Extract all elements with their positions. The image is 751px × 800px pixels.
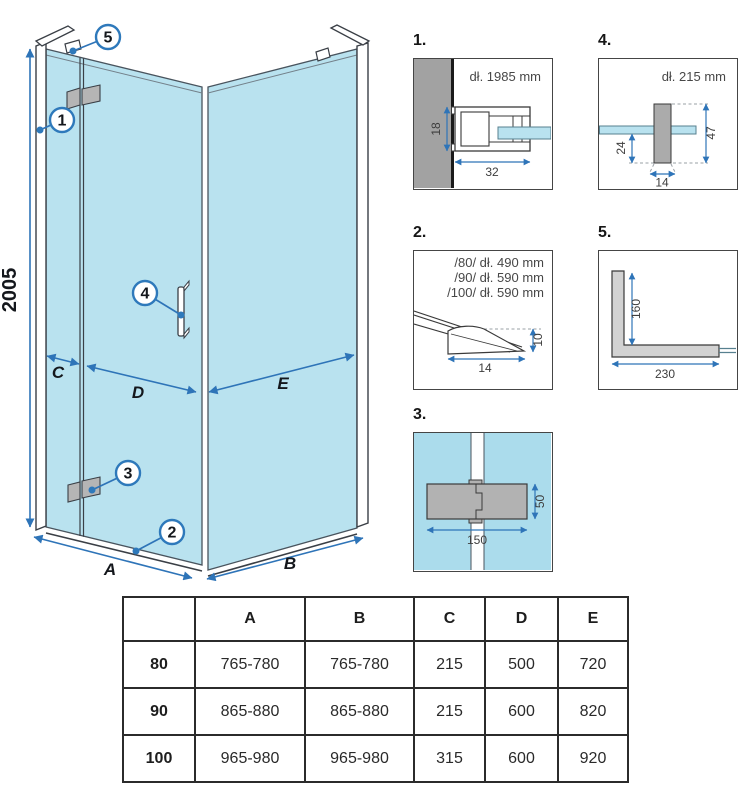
- cell-80-e: 720: [558, 641, 628, 688]
- dim-d-label: D: [132, 383, 144, 402]
- row-size-90: 90: [123, 688, 195, 735]
- header-a: A: [195, 597, 305, 641]
- cell-100-a: 965-980: [195, 735, 305, 782]
- dimension-height: 2005: [0, 49, 30, 527]
- wall-profile-right: [357, 43, 368, 527]
- dim-10-label: 10: [531, 333, 545, 347]
- dim-24-label: 24: [614, 141, 628, 155]
- row-size-100: 100: [123, 735, 195, 782]
- detail-1-drawing: dł. 1985 mm 18 32: [414, 59, 551, 188]
- detail-2-dim-14: 14: [448, 359, 525, 375]
- dim-18-label: 18: [429, 122, 443, 136]
- dim-47-label: 47: [704, 126, 718, 140]
- callout-4-number: 4: [141, 286, 150, 303]
- glass-edge: [600, 126, 697, 134]
- detail-2-box: /80/ dł. 490 mm /90/ dł. 590 mm /100/ dł…: [413, 250, 553, 390]
- detail-1-box: dł. 1985 mm 18 32: [413, 58, 553, 190]
- dim-32-label: 32: [485, 165, 499, 179]
- callout-2-number: 2: [168, 525, 177, 542]
- cell-90-e: 820: [558, 688, 628, 735]
- height-dim-label: 2005: [0, 268, 21, 313]
- detail-2-note-90: /90/ dł. 590 mm: [454, 270, 544, 285]
- dim-160-label: 160: [629, 299, 643, 319]
- header-e: E: [558, 597, 628, 641]
- table-row: 100 965-980 965-980 315 600 920: [123, 735, 628, 782]
- detail-2-note-80: /80/ dł. 490 mm: [454, 255, 544, 270]
- size-table: A B C D E 80 765-780 765-780 215 500 720…: [122, 596, 629, 783]
- cell-100-b: 965-980: [305, 735, 414, 782]
- callout-1-number: 1: [58, 113, 67, 130]
- header-b: B: [305, 597, 414, 641]
- detail-4-dim-47: 47: [704, 104, 718, 163]
- dim-b-label: B: [284, 554, 296, 573]
- detail-3-box: 150 50: [413, 432, 553, 572]
- detail-4-label: 4.: [598, 32, 611, 50]
- bottom-seal-profile: [448, 326, 524, 354]
- glass-panel-right: [208, 49, 357, 570]
- wall-line: [451, 59, 454, 188]
- row-size-80: 80: [123, 641, 195, 688]
- detail-5-drawing: 160 230: [599, 251, 736, 388]
- table-row: 90 865-880 865-880 215 600 820: [123, 688, 628, 735]
- header-empty: [123, 597, 195, 641]
- cell-100-d: 600: [485, 735, 558, 782]
- cell-100-e: 920: [558, 735, 628, 782]
- callout-5: 5: [70, 25, 121, 55]
- detail-2-drawing: /80/ dł. 490 mm /90/ dł. 590 mm /100/ dł…: [414, 251, 551, 388]
- detail-5-label: 5.: [598, 224, 611, 242]
- header-c: C: [414, 597, 485, 641]
- detail-2-note-100: /100/ dł. 590 mm: [447, 285, 544, 300]
- cell-80-a: 765-780: [195, 641, 305, 688]
- glass-hinge: [427, 480, 527, 523]
- header-d: D: [485, 597, 558, 641]
- dim-14-label: 14: [655, 176, 669, 189]
- detail-1-dim-32: 32: [455, 162, 530, 179]
- detail-4-dim-24: 24: [614, 134, 632, 163]
- dim-50-label: 50: [533, 495, 547, 509]
- cell-80-d: 500: [485, 641, 558, 688]
- cell-80-c: 215: [414, 641, 485, 688]
- dim-14-label: 14: [478, 361, 492, 375]
- detail-2-label: 2.: [413, 224, 426, 242]
- dim-e-label: E: [277, 374, 289, 393]
- detail-4-dim-14: 14: [650, 174, 675, 188]
- cell-80-b: 765-780: [305, 641, 414, 688]
- detail-5-dim-230: 230: [612, 364, 719, 381]
- detail-1-length-note: dł. 1985 mm: [469, 69, 541, 84]
- detail-2-dim-10: 10: [531, 329, 545, 352]
- callout-5-number: 5: [104, 30, 113, 47]
- table-header-row: A B C D E: [123, 597, 628, 641]
- cell-90-c: 215: [414, 688, 485, 735]
- glass-edge: [719, 349, 736, 353]
- detail-3-label: 3.: [413, 406, 426, 424]
- detail-4-box: dł. 215 mm 47 24 14: [598, 58, 738, 190]
- detail-3-drawing: 150 50: [414, 433, 551, 570]
- cell-90-b: 865-880: [305, 688, 414, 735]
- wall-profile-left: [36, 42, 46, 530]
- wall-bracket: [654, 104, 671, 163]
- main-drawing: 2005 C D E A B 5: [0, 0, 405, 595]
- detail-4-length-note: dł. 215 mm: [662, 69, 726, 84]
- dim-230-label: 230: [655, 367, 675, 381]
- cell-100-c: 315: [414, 735, 485, 782]
- glass-edge: [498, 127, 551, 139]
- shower-enclosure-spec-sheet: 2005 C D E A B 5: [0, 0, 751, 800]
- detail-5-dim-160: 160: [629, 273, 643, 345]
- cell-90-a: 865-880: [195, 688, 305, 735]
- callout-3-number: 3: [124, 466, 133, 483]
- wall-profile-section: [452, 107, 552, 151]
- table-row: 80 765-780 765-780 215 500 720: [123, 641, 628, 688]
- dim-c-label: C: [52, 363, 65, 382]
- detail-1-label: 1.: [413, 32, 426, 50]
- detail-5-box: 160 230: [598, 250, 738, 390]
- dim-150-label: 150: [467, 533, 487, 547]
- cell-90-d: 600: [485, 688, 558, 735]
- dim-a-label: A: [103, 560, 116, 579]
- detail-4-drawing: dł. 215 mm 47 24 14: [599, 59, 736, 188]
